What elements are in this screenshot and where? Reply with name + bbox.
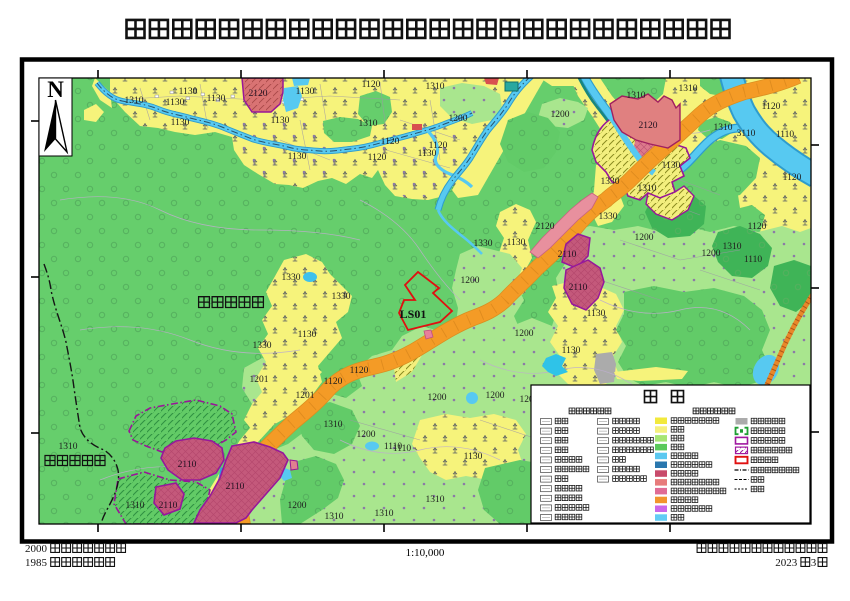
svg-text:1310: 1310: [359, 119, 378, 129]
svg-text:1120: 1120: [748, 222, 767, 232]
svg-text:3110: 3110: [737, 129, 756, 139]
svg-text:1130: 1130: [418, 149, 437, 159]
svg-text:1330: 1330: [282, 273, 301, 283]
svg-text:1110: 1110: [744, 255, 763, 265]
svg-text:1200: 1200: [551, 110, 570, 120]
svg-text:1130: 1130: [271, 116, 290, 126]
svg-text:1310: 1310: [679, 84, 698, 94]
svg-text:1330: 1330: [474, 239, 493, 249]
svg-text:1330: 1330: [599, 212, 618, 222]
svg-text:1200: 1200: [486, 391, 505, 401]
svg-text:1130: 1130: [507, 238, 526, 248]
svg-text:1120: 1120: [762, 102, 781, 112]
svg-text:1120: 1120: [368, 153, 387, 163]
svg-text:1310: 1310: [375, 509, 394, 519]
svg-text:2110: 2110: [569, 283, 588, 293]
svg-text:1130: 1130: [179, 87, 198, 97]
svg-text:1200: 1200: [635, 233, 654, 243]
svg-text:1200: 1200: [288, 501, 307, 511]
svg-text:1130: 1130: [166, 98, 185, 108]
svg-text:1120: 1120: [362, 80, 381, 90]
svg-text:1310: 1310: [325, 512, 344, 522]
svg-text:2120: 2120: [249, 89, 268, 99]
svg-text:2110: 2110: [226, 482, 245, 492]
svg-text:1310: 1310: [714, 123, 733, 133]
svg-text:1330: 1330: [601, 177, 620, 187]
svg-text:1130: 1130: [207, 94, 226, 104]
svg-text:2000: 2000: [25, 543, 48, 555]
svg-text:1110: 1110: [393, 444, 412, 454]
svg-text:1310: 1310: [125, 96, 144, 106]
svg-text:1130: 1130: [296, 87, 315, 97]
svg-text:2023: 2023: [775, 557, 798, 569]
svg-text:1200: 1200: [702, 249, 721, 259]
svg-text:N: N: [47, 77, 64, 102]
svg-text:LS01: LS01: [400, 307, 427, 321]
svg-text:1130: 1130: [171, 118, 190, 128]
svg-text:1200: 1200: [357, 430, 376, 440]
svg-text:3: 3: [811, 557, 817, 569]
svg-text:1201: 1201: [250, 375, 269, 385]
svg-text:1310: 1310: [59, 442, 78, 452]
svg-text:1200: 1200: [461, 276, 480, 286]
svg-text:2120: 2120: [639, 121, 658, 131]
svg-text:1330: 1330: [332, 292, 351, 302]
svg-text:1310: 1310: [638, 184, 657, 194]
svg-text:1201: 1201: [296, 391, 315, 401]
svg-text:1130: 1130: [587, 309, 606, 319]
svg-text:1310: 1310: [324, 420, 343, 430]
svg-text:1130: 1130: [298, 330, 317, 340]
svg-text:1120: 1120: [783, 173, 802, 183]
svg-text:1330: 1330: [253, 341, 272, 351]
svg-text:1200: 1200: [428, 393, 447, 403]
svg-text:1130: 1130: [662, 161, 681, 171]
svg-text:1120: 1120: [381, 137, 400, 147]
svg-text:1200: 1200: [515, 329, 534, 339]
svg-text:2120: 2120: [536, 222, 555, 232]
svg-text:2110: 2110: [178, 460, 197, 470]
svg-text:1310: 1310: [627, 91, 646, 101]
svg-text:1110: 1110: [776, 130, 795, 140]
svg-text:2110: 2110: [159, 501, 178, 511]
svg-text:1:10,000: 1:10,000: [406, 547, 445, 559]
svg-text:1130: 1130: [464, 452, 483, 462]
svg-text:1120: 1120: [350, 366, 369, 376]
svg-text:1310: 1310: [126, 501, 145, 511]
svg-text:1310: 1310: [426, 82, 445, 92]
svg-text:2110: 2110: [558, 250, 577, 260]
svg-text:1120: 1120: [324, 377, 343, 387]
svg-text:1130: 1130: [288, 152, 307, 162]
svg-text:1310: 1310: [723, 242, 742, 252]
svg-text:1200: 1200: [449, 114, 468, 124]
svg-text:1310: 1310: [426, 495, 445, 505]
svg-text:1985: 1985: [25, 557, 48, 569]
svg-text:1130: 1130: [562, 346, 581, 356]
